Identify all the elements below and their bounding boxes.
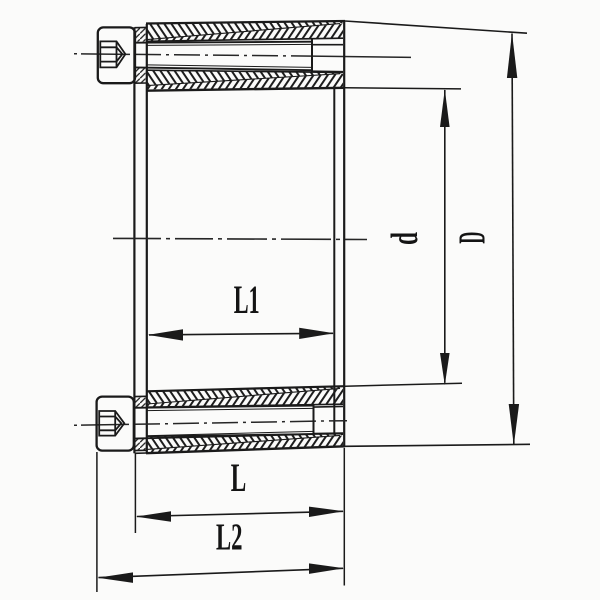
svg-text:L1: L1	[234, 277, 260, 322]
svg-text:L: L	[231, 455, 247, 500]
svg-text:L2: L2	[216, 517, 243, 559]
svg-text:d: d	[384, 232, 426, 245]
svg-text:D: D	[452, 232, 494, 244]
